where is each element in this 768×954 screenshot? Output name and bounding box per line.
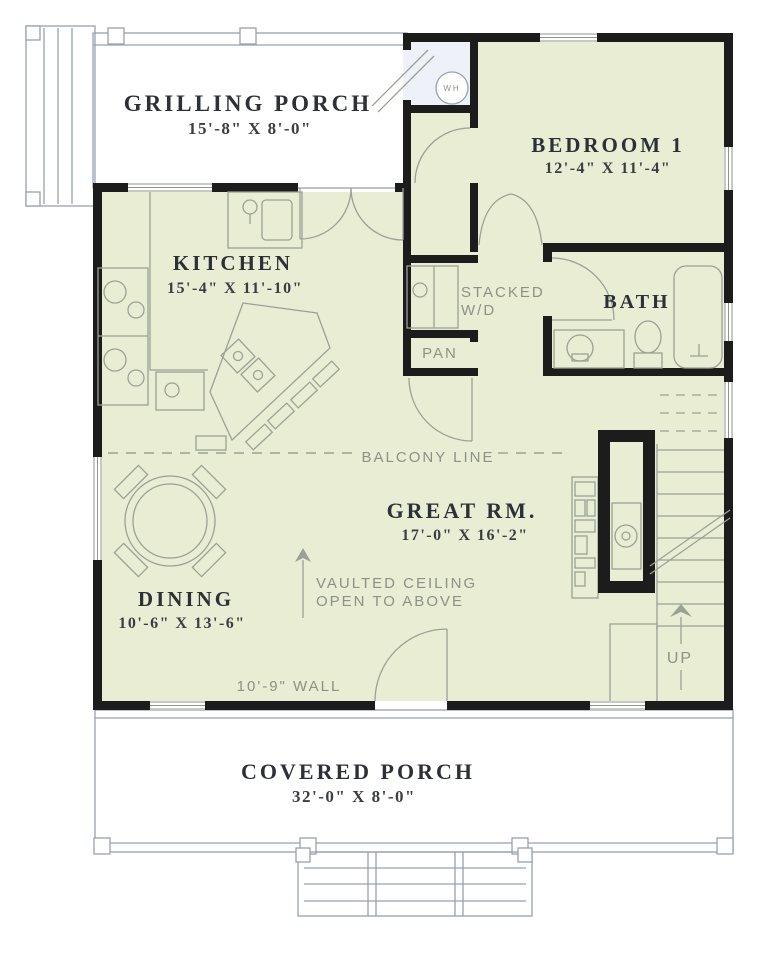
room-label-bedroom-1: BEDROOM 1 (531, 133, 685, 157)
room-dims-grilling-porch: 15'-8" X 8'-0" (188, 119, 312, 138)
water-heater-icon: WH (436, 72, 468, 104)
annotation-vaulted-line2: OPEN TO ABOVE (316, 593, 464, 610)
annotation-stacked-wd-line2: W/D (461, 302, 496, 319)
porch-post (108, 28, 124, 44)
annotation-up: UP (667, 650, 693, 667)
window (540, 33, 597, 42)
window (724, 303, 733, 341)
window (128, 183, 212, 192)
room-label-grilling-porch: GRILLING PORCH (124, 91, 372, 116)
porch-post (26, 192, 40, 206)
window (590, 701, 645, 710)
room-dims-bedroom-1: 12'-4" X 11'-4" (545, 160, 671, 177)
window (93, 457, 102, 560)
annotation-stacked-wd-line1: STACKED (461, 284, 545, 301)
porch-post (26, 26, 40, 40)
room-dims-great-room: 17'-0" X 16'-2" (401, 527, 528, 544)
room-dims-kitchen: 15'-4" X 11'-10" (167, 280, 303, 297)
porch-post (296, 848, 310, 862)
annotation-vaulted-line1: VAULTED CEILING (316, 575, 477, 592)
window (150, 701, 205, 710)
annotation-wall-note: 10'-9" WALL (237, 678, 342, 695)
steps-outline (26, 26, 95, 206)
water-heater-label: WH (443, 84, 460, 93)
room-dims-covered-porch: 32'-0" X 8'-0" (292, 787, 416, 806)
floor-plan-page: WH (0, 0, 768, 954)
porch-post (240, 28, 256, 44)
porch-post (717, 838, 733, 854)
grilling-porch-steps (26, 26, 95, 206)
covered-porch-steps (296, 848, 532, 916)
room-label-covered-porch: COVERED PORCH (241, 759, 475, 784)
annotation-balcony-line: BALCONY LINE (362, 449, 495, 466)
annotation-pantry: PAN (422, 345, 458, 362)
window (724, 382, 733, 438)
room-dims-dining: 10'-6" X 13'-6" (118, 615, 245, 632)
porch-post (94, 838, 110, 854)
porch-post (518, 848, 532, 862)
room-label-great-room: GREAT RM. (387, 498, 538, 523)
floor-plan: WH (0, 0, 768, 954)
window (724, 147, 733, 190)
room-label-dining: DINING (138, 587, 234, 611)
room-label-kitchen: KITCHEN (173, 251, 293, 275)
room-label-bath: BATH (603, 291, 670, 313)
